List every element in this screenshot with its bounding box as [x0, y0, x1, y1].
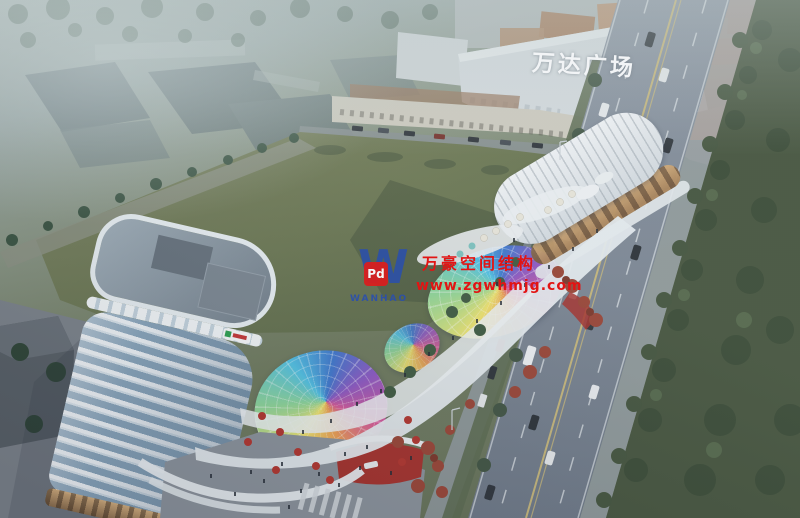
- watermark-company: 万豪空间结构: [422, 250, 583, 274]
- wanhao-logo-seal: Pd: [364, 262, 388, 286]
- watermark-text: 万豪空间结构 www.zgwhmjg.com: [422, 250, 583, 294]
- aerial-rendering: 万达广场 W Pd WANHAO 万豪空间结构 www.zgwhmjg.com: [0, 0, 800, 518]
- wanhao-logo-name: WANHAO: [350, 294, 408, 304]
- wanda-plaza-sign: 万达广场: [531, 43, 637, 82]
- wanhao-logo: W Pd WANHAO: [350, 250, 412, 308]
- watermark-url: www.zgwhmjg.com: [416, 278, 583, 294]
- watermark: W Pd WANHAO 万豪空间结构 www.zgwhmjg.com: [350, 250, 590, 312]
